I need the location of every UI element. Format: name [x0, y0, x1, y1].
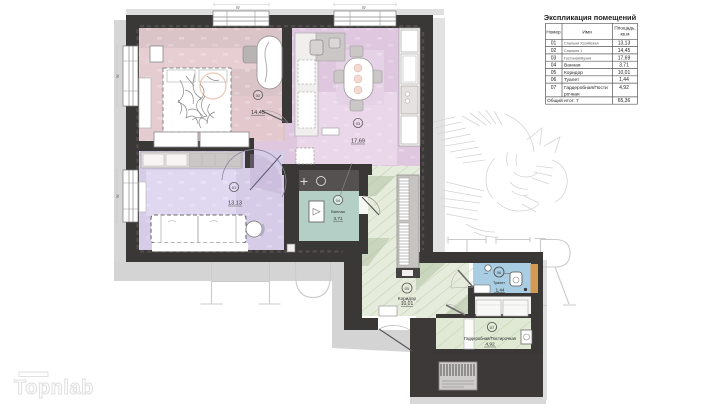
- svg-text:02: 02: [551, 48, 557, 54]
- svg-text:w: w: [115, 74, 121, 78]
- svg-text:17,69: 17,69: [351, 139, 365, 145]
- svg-text:06: 06: [551, 77, 557, 83]
- svg-text:03: 03: [551, 55, 557, 61]
- svg-text:Ванная: Ванная: [564, 63, 581, 69]
- svg-text:01: 01: [551, 41, 557, 47]
- svg-text:w: w: [115, 194, 121, 198]
- svg-text:Гардеробная/Пости: Гардеробная/Пости: [564, 85, 608, 91]
- svg-text:05: 05: [551, 70, 557, 76]
- svg-text:14,45: 14,45: [251, 110, 265, 116]
- svg-text:w: w: [236, 5, 240, 11]
- svg-text:Гардеробная/Постирочная: Гардеробная/Постирочная: [464, 336, 516, 341]
- svg-text:17,69: 17,69: [618, 55, 631, 61]
- svg-text:Имя: Имя: [582, 30, 592, 36]
- svg-text:3,71: 3,71: [334, 216, 343, 221]
- svg-text:Гостиная/Кухня: Гостиная/Кухня: [564, 56, 591, 60]
- svg-text:1,44: 1,44: [619, 77, 629, 83]
- svg-text:Площадь,: Площадь,: [614, 26, 635, 31]
- svg-text:Спальня 1: Спальня 1: [564, 49, 582, 53]
- svg-text:Коридор: Коридор: [564, 70, 583, 76]
- svg-text:Номер: Номер: [546, 30, 561, 35]
- svg-text:Экспликация помещений: Экспликация помещений: [544, 13, 637, 22]
- svg-text:Туалет: Туалет: [493, 281, 505, 285]
- svg-text:Туалет: Туалет: [564, 77, 580, 83]
- svg-text:4,92: 4,92: [485, 342, 495, 348]
- svg-text:рочная: рочная: [564, 93, 580, 98]
- svg-text:4,92: 4,92: [619, 85, 629, 91]
- svg-text:07: 07: [551, 85, 557, 91]
- svg-text:3,71: 3,71: [619, 63, 629, 69]
- svg-text:01: 01: [232, 185, 237, 190]
- svg-text:10,01: 10,01: [401, 301, 414, 307]
- svg-text:06: 06: [497, 270, 502, 275]
- svg-text:13,13: 13,13: [618, 41, 631, 47]
- svg-text:1,44: 1,44: [496, 288, 505, 293]
- svg-text:03: 03: [356, 121, 361, 126]
- svg-text:07: 07: [490, 325, 495, 330]
- svg-text:13,13: 13,13: [228, 201, 242, 207]
- svg-text:65,36: 65,36: [618, 98, 631, 104]
- svg-text:02: 02: [256, 93, 261, 98]
- svg-text:10,01: 10,01: [618, 70, 631, 76]
- svg-text:кв.м: кв.м: [621, 32, 630, 37]
- svg-text:05: 05: [405, 286, 410, 291]
- svg-text:04: 04: [551, 63, 557, 69]
- svg-text:Ванная: Ванная: [331, 209, 345, 214]
- svg-text:w: w: [362, 5, 366, 11]
- svg-text:Спальня Хозяйская: Спальня Хозяйская: [564, 42, 599, 46]
- svg-text:Topnlab: Topnlab: [14, 377, 94, 399]
- svg-text:14,45: 14,45: [618, 48, 631, 54]
- svg-text:Общий итог: 7: Общий итог: 7: [547, 97, 579, 104]
- svg-text:04: 04: [336, 198, 341, 203]
